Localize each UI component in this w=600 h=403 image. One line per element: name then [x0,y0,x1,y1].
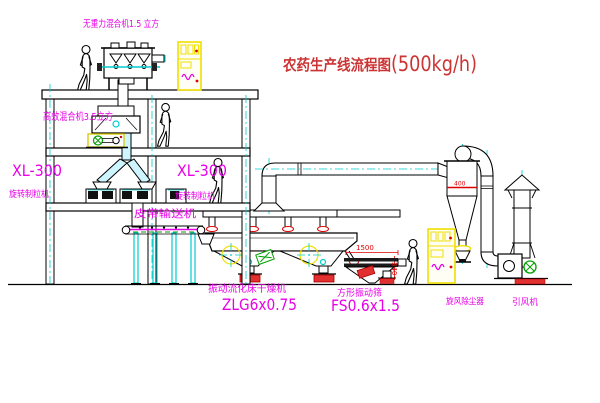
label-cyclone: 旋风除尘器 [446,296,484,307]
label-dryer-model: ZLG6x0.75 [222,295,297,314]
label-screen-model: FS0.6x1.5 [331,296,400,315]
label-high-eff-mixer: 高效混合机3.5立方 [43,110,113,123]
worker-top-floor [78,46,92,91]
dryer-ports [207,217,329,232]
rain-cap [505,175,539,190]
label-dryer-name: 振动流化床干燥机 [208,282,286,295]
label-granulator-left-model: XL-300 [12,161,62,180]
worker-second-floor [157,103,170,146]
control-cabinet-top [178,42,201,90]
dim-screen-height: 340 [390,262,398,275]
granulator-left [86,189,116,203]
process-flow-diagram: 农药生产线流程图 (500kg/h) 无重力混合机1.5 立方 高效混合机3.5… [0,0,600,403]
dim-cyclone-band: 400 [454,181,466,188]
label-fan: 引风机 [512,296,538,308]
label-gravity-mixer: 无重力混合机1.5 立方 [83,18,159,30]
belt-conveyor [122,226,205,284]
label-granulator-mid-name: 旋转制粒机 [175,190,215,202]
dim-screen-length: 1500 [356,244,374,252]
dryer-stand-base-right [314,275,334,282]
induced-draft-fan [494,254,548,284]
control-cabinet-bottom [428,229,455,283]
granulator-right [120,189,152,203]
page: 农药生产线流程图 (500kg/h) 无重力混合机1.5 立方 高效混合机3.5… [0,0,600,403]
fan-base [515,279,545,284]
label-belt-conveyor: 皮带输送机 [134,207,197,220]
label-granulator-left-name: 旋转制粒机 [9,188,49,200]
diagram-title: 农药生产线流程图 [282,56,391,74]
dryer-exhaust-duct [254,158,447,215]
worker-ground [405,240,419,285]
diagram-title-capacity: (500kg/h) [391,52,477,76]
label-granulator-mid-model: XL-300 [177,161,227,180]
